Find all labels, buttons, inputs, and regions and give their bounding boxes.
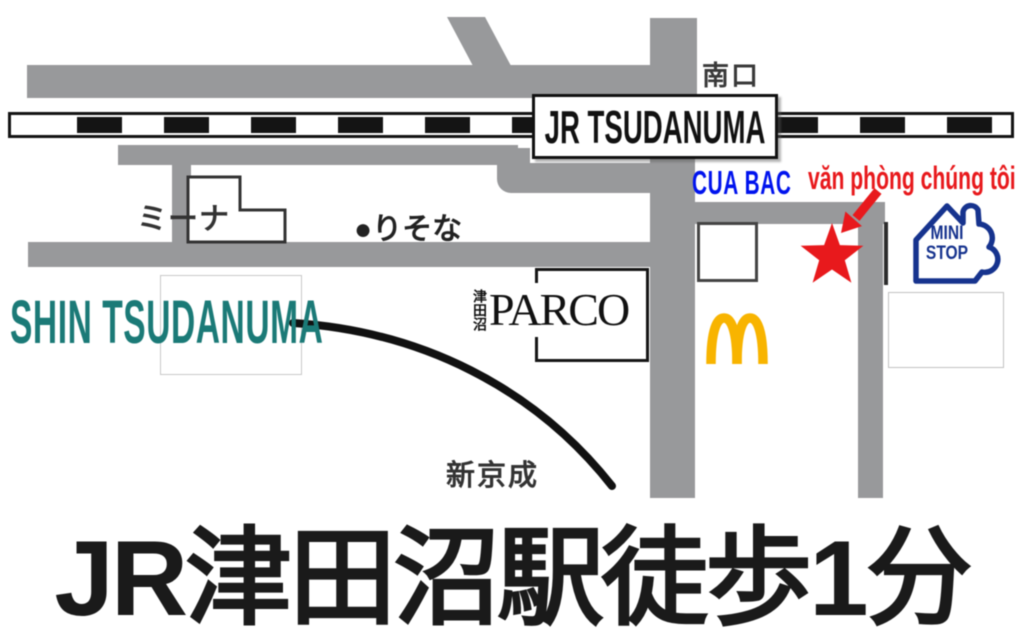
railway-dash-pattern: [13, 117, 1009, 133]
jr-station-box: JR TSUDANUMA: [532, 94, 778, 159]
risona-bank-label: ●りそな: [354, 204, 462, 248]
access-map: JR TSUDANUMA 南口 CUA BAC văn phòng chúng …: [0, 0, 1024, 640]
mcdonalds-icon: [711, 318, 768, 364]
road-east-horizontal: [695, 202, 885, 224]
headline-text: JR津田沼駅徒歩1分: [54, 491, 969, 640]
road-east-vertical: [858, 202, 883, 498]
south-exit-label: 南口: [702, 54, 760, 93]
road-station-front: [513, 163, 695, 193]
office-note-label: văn phòng chúng tôi: [808, 160, 1016, 197]
building-box-below-ministop: [888, 292, 1004, 368]
road-diagonal-stub: [447, 17, 513, 69]
north-gate-label: CUA BAC: [692, 164, 792, 202]
headline-bar: JR津田沼駅徒歩1分: [0, 496, 1024, 640]
jr-railway-line: [8, 112, 1014, 138]
parco-wordmark: PARCO: [489, 287, 628, 333]
office-star-icon: [801, 223, 864, 283]
parco-logo: 津田沼 PARCO: [470, 283, 631, 337]
building-edge-line: [884, 222, 888, 285]
ministop-label-line1: MINI: [922, 224, 973, 244]
ministop-label-line2: STOP: [922, 244, 973, 264]
parco-city-label: 津田沼: [473, 289, 487, 331]
ministop-label: MINI STOP: [922, 224, 973, 264]
corner-building: [697, 222, 758, 282]
shinkeisei-label: 新京成: [446, 452, 539, 494]
jr-station-label: JR TSUDANUMA: [545, 100, 766, 154]
shin-tsudanuma-label: SHIN TSUDANUMA: [10, 287, 323, 357]
mina-label: ミーナ: [137, 194, 230, 238]
road-parco-horizontal: [28, 242, 658, 267]
